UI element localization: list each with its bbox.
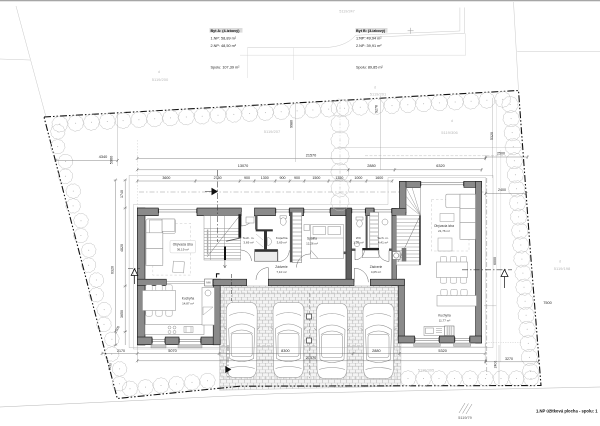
svg-text:4,05 m²: 4,05 m² — [371, 270, 381, 274]
svg-text:7500: 7500 — [543, 301, 551, 305]
svg-text:Zádverie: Zádverie — [370, 265, 383, 269]
svg-text:1500: 1500 — [312, 176, 320, 180]
svg-text:d: d — [559, 260, 561, 264]
svg-text:36,19 m²: 36,19 m² — [177, 247, 189, 251]
svg-text:5320: 5320 — [490, 132, 494, 140]
svg-text:14,87 m²: 14,87 m² — [182, 302, 194, 306]
svg-text:2400: 2400 — [494, 361, 498, 369]
svg-text:Kuchyňa: Kuchyňa — [438, 314, 451, 318]
svg-text:2500: 2500 — [497, 152, 505, 156]
svg-text:3270: 3270 — [505, 357, 513, 361]
svg-text:Tech. m.: Tech. m. — [377, 236, 389, 240]
svg-text:Obývacia izba: Obývacia izba — [173, 242, 193, 246]
svg-text:Byt B: (3-izbový): Byt B: (3-izbový) — [356, 29, 386, 33]
svg-text:Tech. m.: Tech. m. — [243, 236, 255, 240]
svg-text:Spolu: 89,85 m²: Spolu: 89,85 m² — [356, 65, 384, 69]
svg-text:5119/306: 5119/306 — [441, 130, 458, 135]
svg-text:8300: 8300 — [281, 349, 289, 353]
svg-text:1350: 1350 — [335, 176, 343, 180]
svg-text:11,77 m²: 11,77 m² — [439, 319, 451, 323]
svg-text:3,69 m²: 3,69 m² — [277, 241, 287, 245]
svg-text:1.NP úžitková plocha - spolu:: 1.NP úžitková plocha - spolu: 1 — [536, 409, 598, 414]
svg-text:4820: 4820 — [120, 244, 124, 252]
svg-text:21570: 21570 — [306, 356, 317, 360]
svg-text:5119/79: 5119/79 — [458, 416, 471, 420]
svg-text:1600: 1600 — [375, 176, 383, 180]
svg-text:2.NP: 39,91 m²: 2.NP: 39,91 m² — [356, 44, 382, 48]
svg-text:6320: 6320 — [110, 266, 114, 274]
svg-text:21,76 m²: 21,76 m² — [438, 229, 450, 233]
svg-text:1000: 1000 — [354, 176, 362, 180]
svg-text:1,06 m²: 1,06 m² — [353, 241, 363, 245]
svg-text:5320: 5320 — [438, 349, 446, 353]
svg-text:Obývacia izba: Obývacia izba — [434, 224, 454, 228]
svg-text:4,41 m²: 4,41 m² — [378, 241, 388, 245]
svg-text:12,26 m²: 12,26 m² — [306, 242, 318, 246]
svg-text:1300: 1300 — [261, 176, 269, 180]
svg-text:9980: 9980 — [290, 120, 294, 128]
svg-text:Kúpeľňa: Kúpeľňa — [276, 236, 288, 240]
svg-text:d: d — [158, 70, 160, 74]
svg-text:4340: 4340 — [99, 155, 107, 159]
svg-text:5119/247: 5119/247 — [339, 10, 355, 14]
svg-text:Byt A: (4-izbový): Byt A: (4-izbový) — [211, 29, 241, 33]
svg-text:6320: 6320 — [436, 164, 444, 168]
svg-text:6000: 6000 — [493, 257, 497, 265]
svg-text:900: 900 — [280, 176, 286, 180]
svg-text:Kuchyňa: Kuchyňa — [182, 297, 195, 301]
svg-text:9270: 9270 — [375, 105, 379, 113]
svg-text:1740: 1740 — [120, 190, 124, 198]
svg-text:2880: 2880 — [372, 349, 380, 353]
svg-text:5960: 5960 — [110, 156, 114, 164]
svg-text:2.NP: 48,50 m²: 2.NP: 48,50 m² — [211, 44, 237, 48]
svg-text:5119/305: 5119/305 — [418, 368, 435, 373]
svg-text:5119/198: 5119/198 — [554, 266, 571, 271]
svg-text:2400: 2400 — [498, 188, 506, 192]
svg-text:5119/207: 5119/207 — [264, 129, 281, 134]
svg-text:21570: 21570 — [306, 154, 317, 158]
svg-text:1.NP: 58,89 m²: 1.NP: 58,89 m² — [211, 36, 237, 40]
svg-text:5070: 5070 — [168, 349, 176, 353]
svg-text:5119/201: 5119/201 — [370, 92, 387, 97]
svg-text:WC: WC — [356, 236, 362, 240]
svg-text:2170: 2170 — [117, 349, 125, 353]
svg-text:Zádverie: Zádverie — [275, 265, 288, 269]
svg-text:d: d — [374, 86, 376, 90]
svg-text:13070: 13070 — [238, 164, 249, 168]
svg-text:3,69 m²: 3,69 m² — [243, 241, 253, 245]
svg-text:3650: 3650 — [120, 310, 124, 318]
svg-text:Spolu: 107,39 m²: Spolu: 107,39 m² — [211, 65, 241, 69]
svg-text:MW: MW — [206, 281, 211, 285]
svg-text:3600: 3600 — [162, 176, 170, 180]
svg-text:Spálňa: Spálňa — [307, 237, 317, 241]
svg-text:7,10 m²: 7,10 m² — [276, 270, 286, 274]
svg-text:900: 900 — [294, 176, 300, 180]
svg-text:1.NP: 49,94 m²: 1.NP: 49,94 m² — [356, 36, 382, 40]
svg-text:d: d — [451, 119, 453, 123]
svg-text:5119/200: 5119/200 — [152, 77, 169, 82]
svg-text:2880: 2880 — [367, 164, 375, 168]
svg-text:900: 900 — [244, 176, 250, 180]
